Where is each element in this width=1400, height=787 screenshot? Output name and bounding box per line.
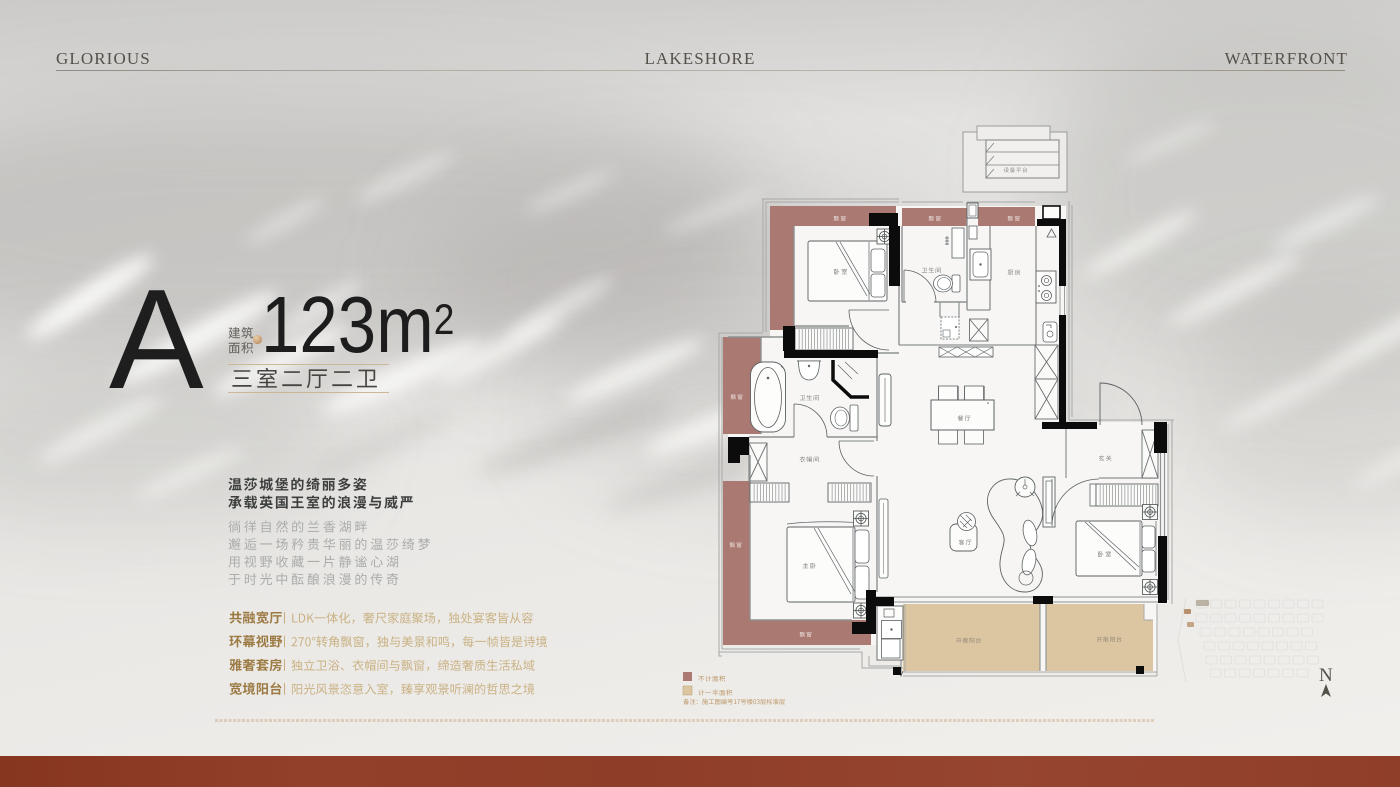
svg-text:N: N	[1319, 665, 1333, 686]
